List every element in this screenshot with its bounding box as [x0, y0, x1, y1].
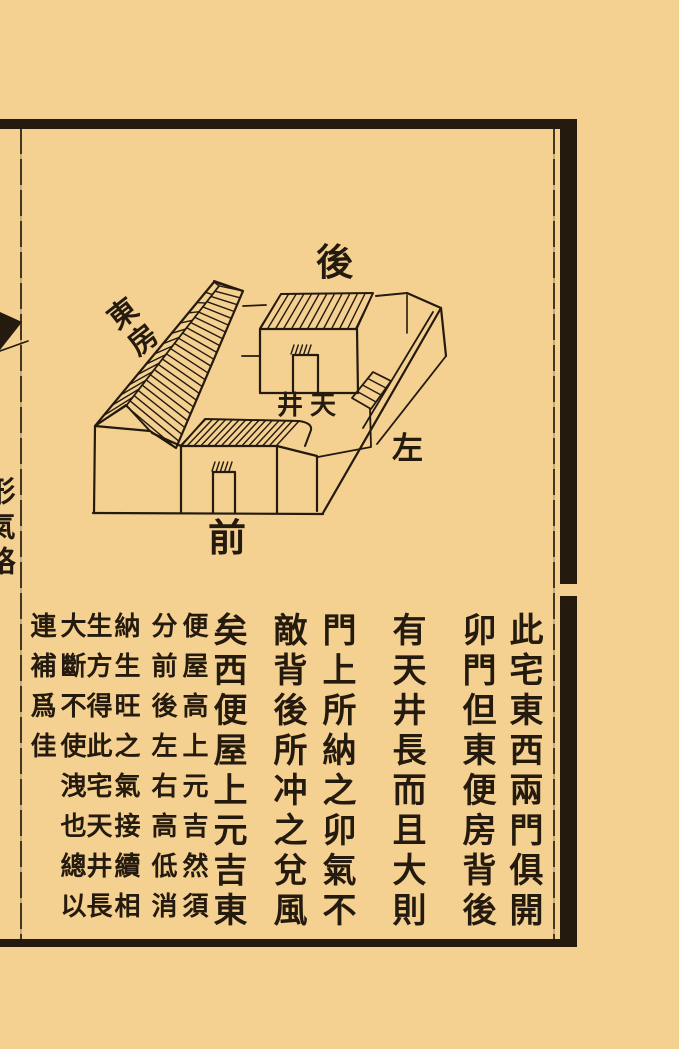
margin-caption-fragment: 形氣略: [0, 476, 13, 581]
book-page: 後 東房 井天 左 前 形氣略 此宅東西兩門俱開 卯門但東便房背後 有天井長而且…: [0, 0, 679, 1049]
text-column-annotation-2: 分前後左右高低消: [149, 612, 175, 942]
text-column-annotation-4: 生方得此宅天井長: [84, 612, 110, 942]
text-column-main-4: 門上所納之卯氣不: [319, 612, 353, 942]
text-column-annotation-1: 便屋高上元吉然須: [180, 612, 206, 942]
text-column-main-3: 有天井長而且大則: [389, 612, 423, 942]
label-left: 左: [392, 434, 423, 465]
text-column-annotation-6: 連補爲佳: [28, 612, 54, 942]
text-column-annotation-3: 納生旺之氣接續相: [112, 612, 138, 942]
label-back: 後: [316, 244, 353, 281]
text-column-main-5: 敵背後所冲之兌風: [270, 612, 304, 942]
text-column-annotation-5: 大斷不使洩也總以: [58, 612, 84, 942]
text-column-main-6: 矣西便屋上元吉東: [210, 612, 244, 942]
label-courtyard: 井天: [277, 393, 343, 419]
label-front: 前: [208, 519, 246, 557]
text-column-main-2: 卯門但東便房背後: [459, 612, 493, 942]
text-column-main-1: 此宅東西兩門俱開: [506, 612, 540, 942]
